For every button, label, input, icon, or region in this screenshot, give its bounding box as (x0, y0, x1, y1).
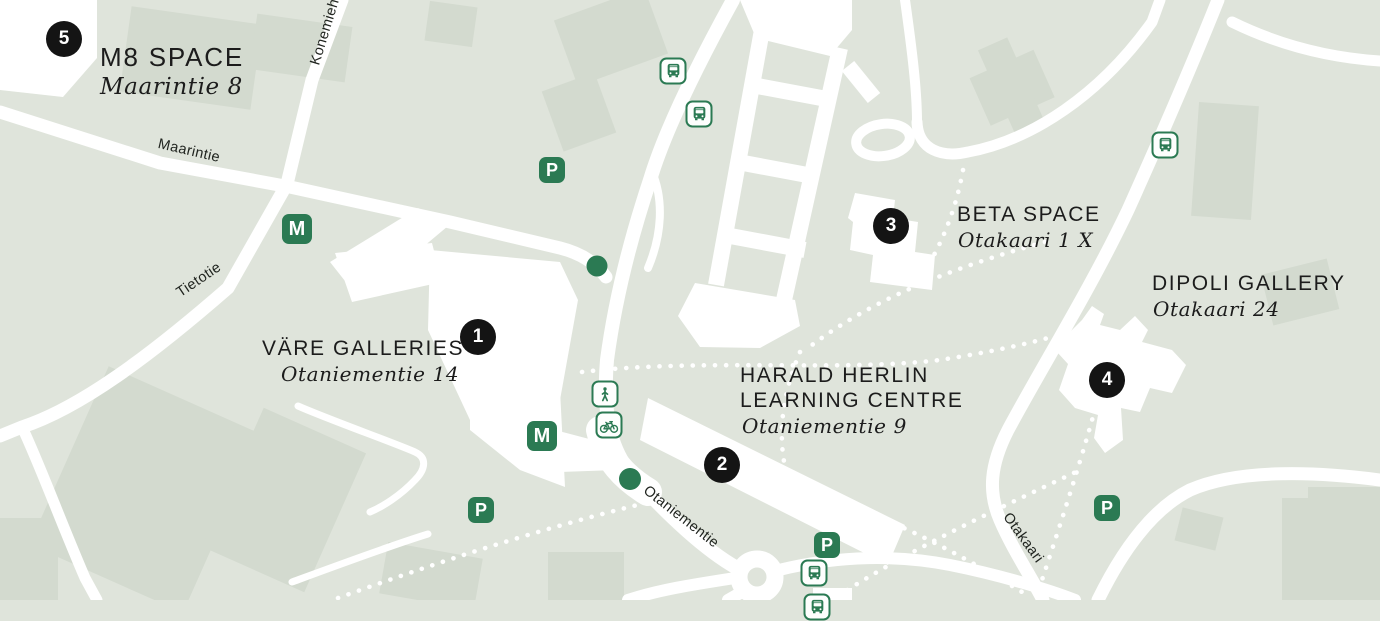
campus-map: { "map": { "colors": { "background": "#d… (0, 0, 1380, 600)
location-marker-3[interactable]: 3 (873, 208, 909, 244)
parking-icon[interactable]: P (1094, 495, 1120, 521)
location-marker-2[interactable]: 2 (704, 447, 740, 483)
place-name: M8 SPACE (100, 42, 244, 72)
street-label-tietotie: Tietotie (174, 259, 225, 300)
pedestrian-route-icon[interactable] (592, 381, 619, 408)
place-address: Maarintie 8 (100, 72, 244, 102)
place-name: BETA SPACE (957, 202, 1101, 227)
place-name: VÄRE GALLERIES (262, 336, 464, 361)
bus-stop-icon[interactable] (660, 58, 687, 85)
place-label-5: M8 SPACEMaarintie 8 (100, 42, 244, 102)
place-name: DIPOLI GALLERY (1152, 271, 1346, 296)
parking-icon[interactable]: P (539, 157, 565, 183)
street-label-otakaari: Otakaari (999, 510, 1046, 566)
location-marker-5[interactable]: 5 (46, 21, 82, 57)
parking-icon[interactable]: P (468, 497, 494, 523)
bus-stop-icon[interactable] (686, 101, 713, 128)
street-label-otaniementie: Otaniementie (640, 483, 722, 552)
metro-station-icon[interactable]: M (527, 421, 557, 451)
location-marker-4[interactable]: 4 (1089, 362, 1125, 398)
bus-stop-icon[interactable] (1152, 132, 1179, 159)
metro-station-icon[interactable]: M (282, 214, 312, 244)
street-label-konemiehentie: Konemiehentie (307, 0, 352, 67)
location-marker-1[interactable]: 1 (460, 319, 496, 355)
place-name: HARALD HERLIN (740, 363, 964, 388)
street-label-maarintie: Maarintie (156, 136, 221, 166)
place-address: Otaniementie 9 (742, 413, 964, 439)
parking-icon[interactable]: P (814, 532, 840, 558)
place-address: Otaniementie 14 (281, 361, 464, 387)
bus-stop-icon[interactable] (801, 560, 828, 587)
bus-stop-icon[interactable] (804, 594, 831, 621)
place-label-3: BETA SPACEOtakaari 1 X (957, 202, 1101, 253)
place-label-4: DIPOLI GALLERYOtakaari 24 (1152, 271, 1346, 322)
bicycle-route-icon[interactable] (596, 412, 623, 439)
place-label-1: VÄRE GALLERIESOtaniementie 14 (262, 336, 464, 387)
place-address: Otakaari 1 X (958, 227, 1101, 253)
place-name: LEARNING CENTRE (740, 388, 964, 413)
map-overlay: MaarintieKonemiehentieTietotieOtaniement… (0, 0, 1380, 600)
place-label-2: HARALD HERLINLEARNING CENTREOtaniementie… (740, 363, 964, 439)
place-address: Otakaari 24 (1153, 296, 1346, 322)
